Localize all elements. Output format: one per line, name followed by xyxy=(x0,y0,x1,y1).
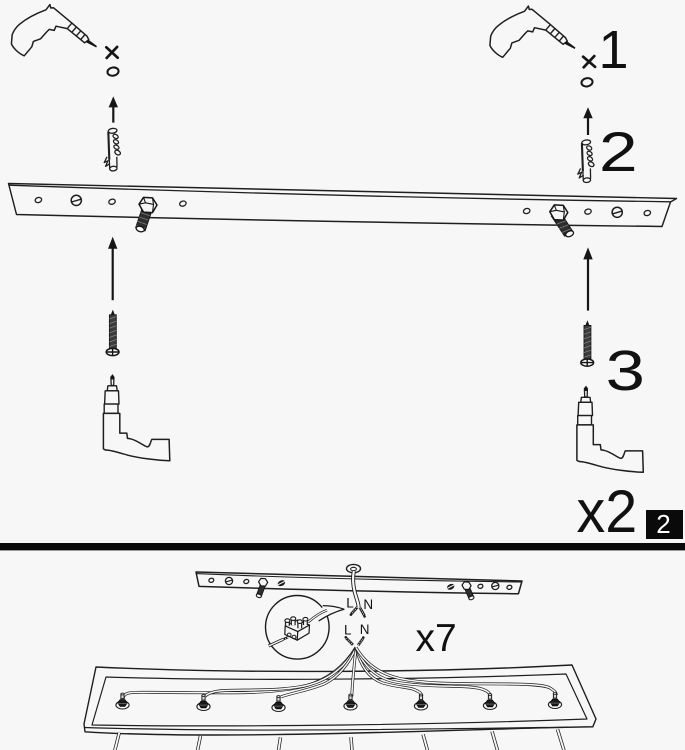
svg-text:L: L xyxy=(346,596,354,611)
svg-text:N: N xyxy=(363,597,373,612)
svg-text:1: 1 xyxy=(598,20,628,80)
svg-text:N: N xyxy=(360,622,370,637)
svg-text:L: L xyxy=(344,623,352,638)
svg-text:3: 3 xyxy=(606,339,645,403)
svg-text:2: 2 xyxy=(656,509,670,539)
svg-text:2: 2 xyxy=(599,121,638,183)
svg-text:x2: x2 xyxy=(577,479,638,545)
svg-text:x7: x7 xyxy=(416,617,457,660)
